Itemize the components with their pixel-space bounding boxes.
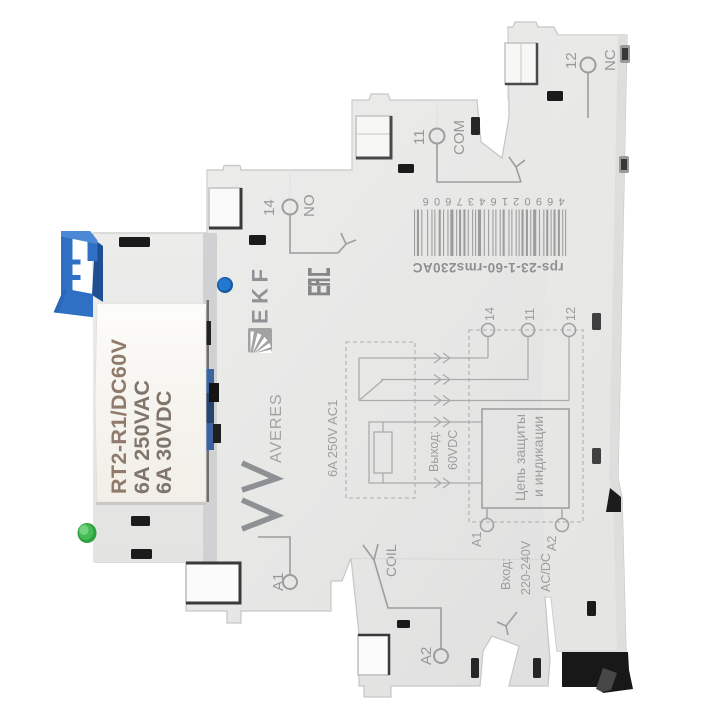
svg-text:220-240V: 220-240V	[519, 540, 533, 595]
svg-text:Выход:: Выход:	[427, 431, 441, 472]
svg-text:NO: NO	[301, 195, 318, 218]
svg-text:60VDC: 60VDC	[446, 430, 460, 470]
svg-text:12: 12	[564, 307, 578, 321]
svg-text:11: 11	[523, 308, 537, 321]
svg-text:14: 14	[261, 199, 278, 216]
svg-text:A2: A2	[418, 647, 435, 665]
svg-text:rps-23-1-60-rms230AC: rps-23-1-60-rms230AC	[412, 260, 563, 275]
svg-text:A1: A1	[270, 573, 287, 591]
svg-text:и индикации: и индикации	[530, 416, 546, 497]
svg-text:6A 250VAC: 6A 250VAC	[130, 380, 154, 494]
svg-text:Цепь защиты: Цепь защиты	[512, 414, 528, 501]
svg-text:AC/DC: AC/DC	[539, 553, 553, 592]
svg-text:A2: A2	[545, 536, 559, 551]
svg-text:6A 30VDC: 6A 30VDC	[152, 390, 176, 494]
svg-text:4690216437606: 4690216437606	[417, 195, 564, 207]
svg-text:6A 250V AC1: 6A 250V AC1	[325, 400, 340, 477]
svg-text:NC: NC	[602, 49, 619, 71]
svg-text:AVERES: AVERES	[268, 393, 285, 463]
svg-text:COIL: COIL	[383, 544, 399, 577]
svg-text:COM: COM	[451, 120, 468, 155]
svg-text:14: 14	[483, 307, 497, 321]
svg-text:11: 11	[411, 129, 428, 145]
svg-text:RT2-R1/DC60V: RT2-R1/DC60V	[107, 338, 131, 494]
svg-text:Вход:: Вход:	[499, 558, 513, 590]
svg-text:A1: A1	[470, 532, 484, 547]
svg-text:EKF: EKF	[248, 264, 273, 325]
svg-text:12: 12	[563, 52, 580, 69]
